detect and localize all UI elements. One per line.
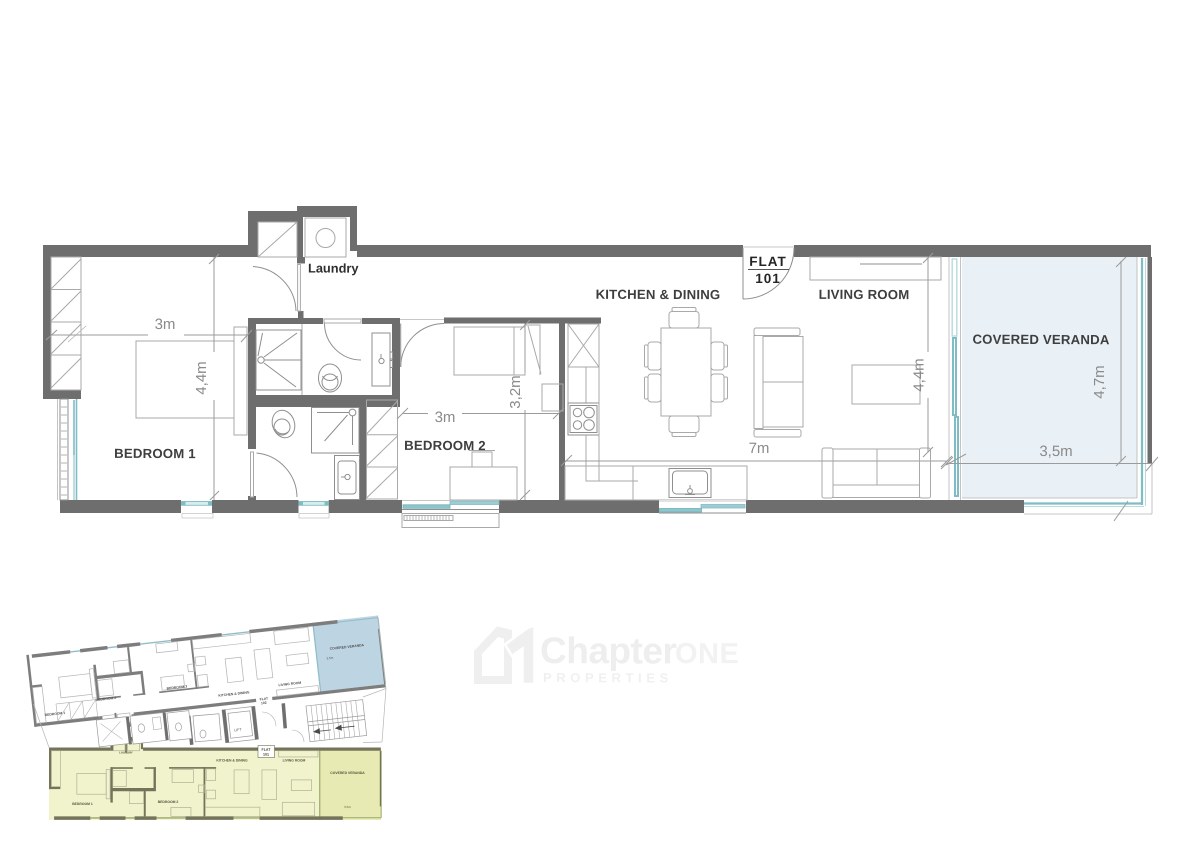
svg-text:3m: 3m	[155, 316, 176, 333]
svg-text:BEDROOM 1: BEDROOM 1	[72, 802, 93, 806]
svg-text:KITCHEN & DINING: KITCHEN & DINING	[216, 758, 248, 762]
svg-text:3,5m: 3,5m	[1039, 443, 1072, 460]
svg-text:Laundry: Laundry	[308, 261, 359, 276]
svg-text:FLAT: FLAT	[749, 254, 787, 269]
svg-text:ONE: ONE	[675, 638, 739, 670]
svg-text:101: 101	[755, 271, 781, 286]
svg-text:PROPERTIES: PROPERTIES	[543, 670, 673, 685]
svg-text:BEDROOM 2: BEDROOM 2	[404, 438, 486, 453]
svg-text:7m: 7m	[749, 440, 770, 457]
svg-text:102: 102	[261, 701, 267, 706]
svg-text:Chapter: Chapter	[540, 630, 677, 671]
svg-text:COVERED VERANDA: COVERED VERANDA	[330, 771, 365, 775]
svg-text:COVERED VERANDA: COVERED VERANDA	[972, 332, 1109, 347]
svg-text:4,7m: 4,7m	[1091, 365, 1108, 398]
svg-text:3,5m: 3,5m	[326, 656, 334, 661]
svg-text:3,5m: 3,5m	[344, 805, 351, 809]
svg-text:FLAT: FLAT	[262, 748, 272, 752]
svg-text:3m: 3m	[435, 409, 456, 426]
svg-text:LIVING ROOM: LIVING ROOM	[819, 287, 910, 302]
svg-text:4,4m: 4,4m	[193, 361, 210, 394]
svg-text:101: 101	[263, 753, 269, 757]
svg-text:LAUNDRY: LAUNDRY	[119, 750, 133, 754]
svg-text:LIVING ROOM: LIVING ROOM	[283, 758, 306, 762]
svg-text:4,4m: 4,4m	[911, 358, 928, 391]
svg-text:BEDROOM 1: BEDROOM 1	[114, 446, 196, 461]
svg-text:KITCHEN & DINING: KITCHEN & DINING	[596, 287, 721, 302]
svg-text:3,2m: 3,2m	[507, 375, 524, 408]
svg-text:BEDROOM 2: BEDROOM 2	[158, 800, 179, 804]
